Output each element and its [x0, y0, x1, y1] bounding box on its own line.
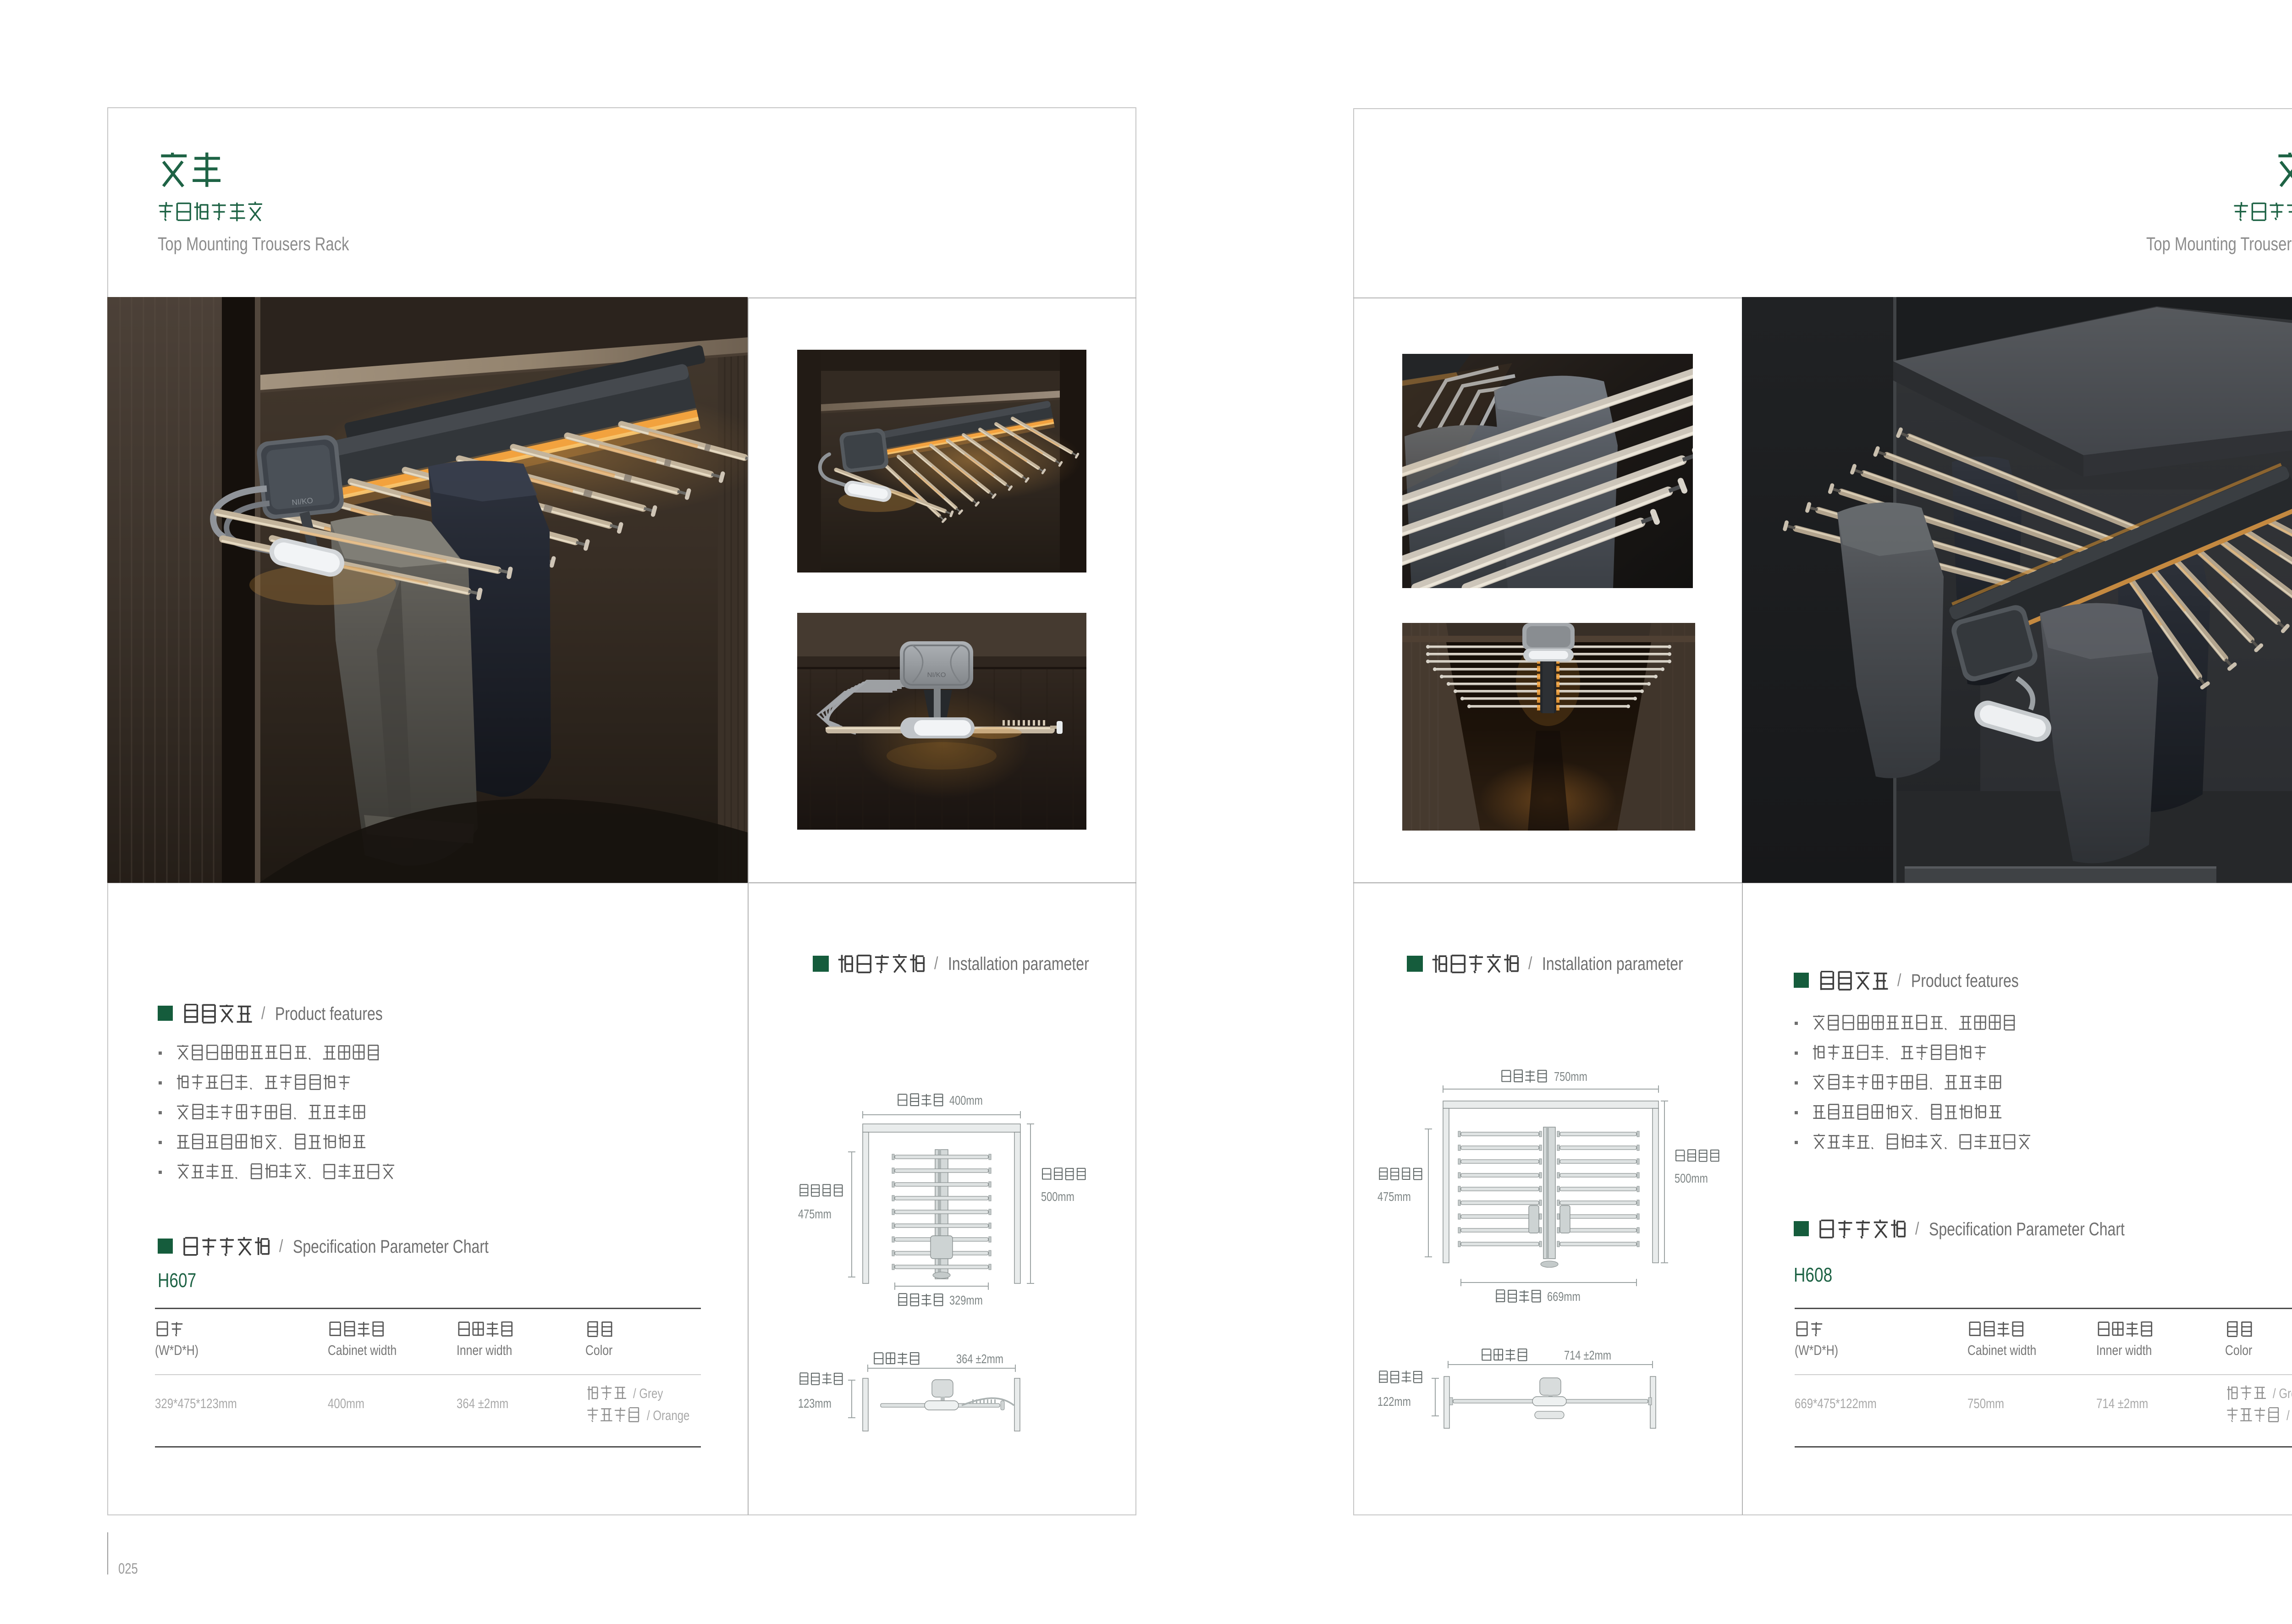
svg-text:475mm: 475mm — [1377, 1189, 1411, 1204]
svg-text:NI/KO: NI/KO — [927, 671, 946, 679]
svg-text:475mm: 475mm — [798, 1207, 832, 1221]
svg-text:364 ±2mm: 364 ±2mm — [956, 1352, 1003, 1366]
svg-text:400mm: 400mm — [949, 1093, 983, 1107]
svg-text:714 ±2mm: 714 ±2mm — [1564, 1348, 1611, 1362]
svg-text:750mm: 750mm — [1554, 1069, 1587, 1084]
svg-text:500mm: 500mm — [1041, 1189, 1074, 1204]
svg-text:122mm: 122mm — [1377, 1394, 1411, 1409]
svg-text:669mm: 669mm — [1547, 1289, 1581, 1304]
svg-text:123mm: 123mm — [798, 1396, 832, 1410]
svg-text:329mm: 329mm — [949, 1293, 983, 1307]
svg-text:500mm: 500mm — [1675, 1171, 1708, 1185]
